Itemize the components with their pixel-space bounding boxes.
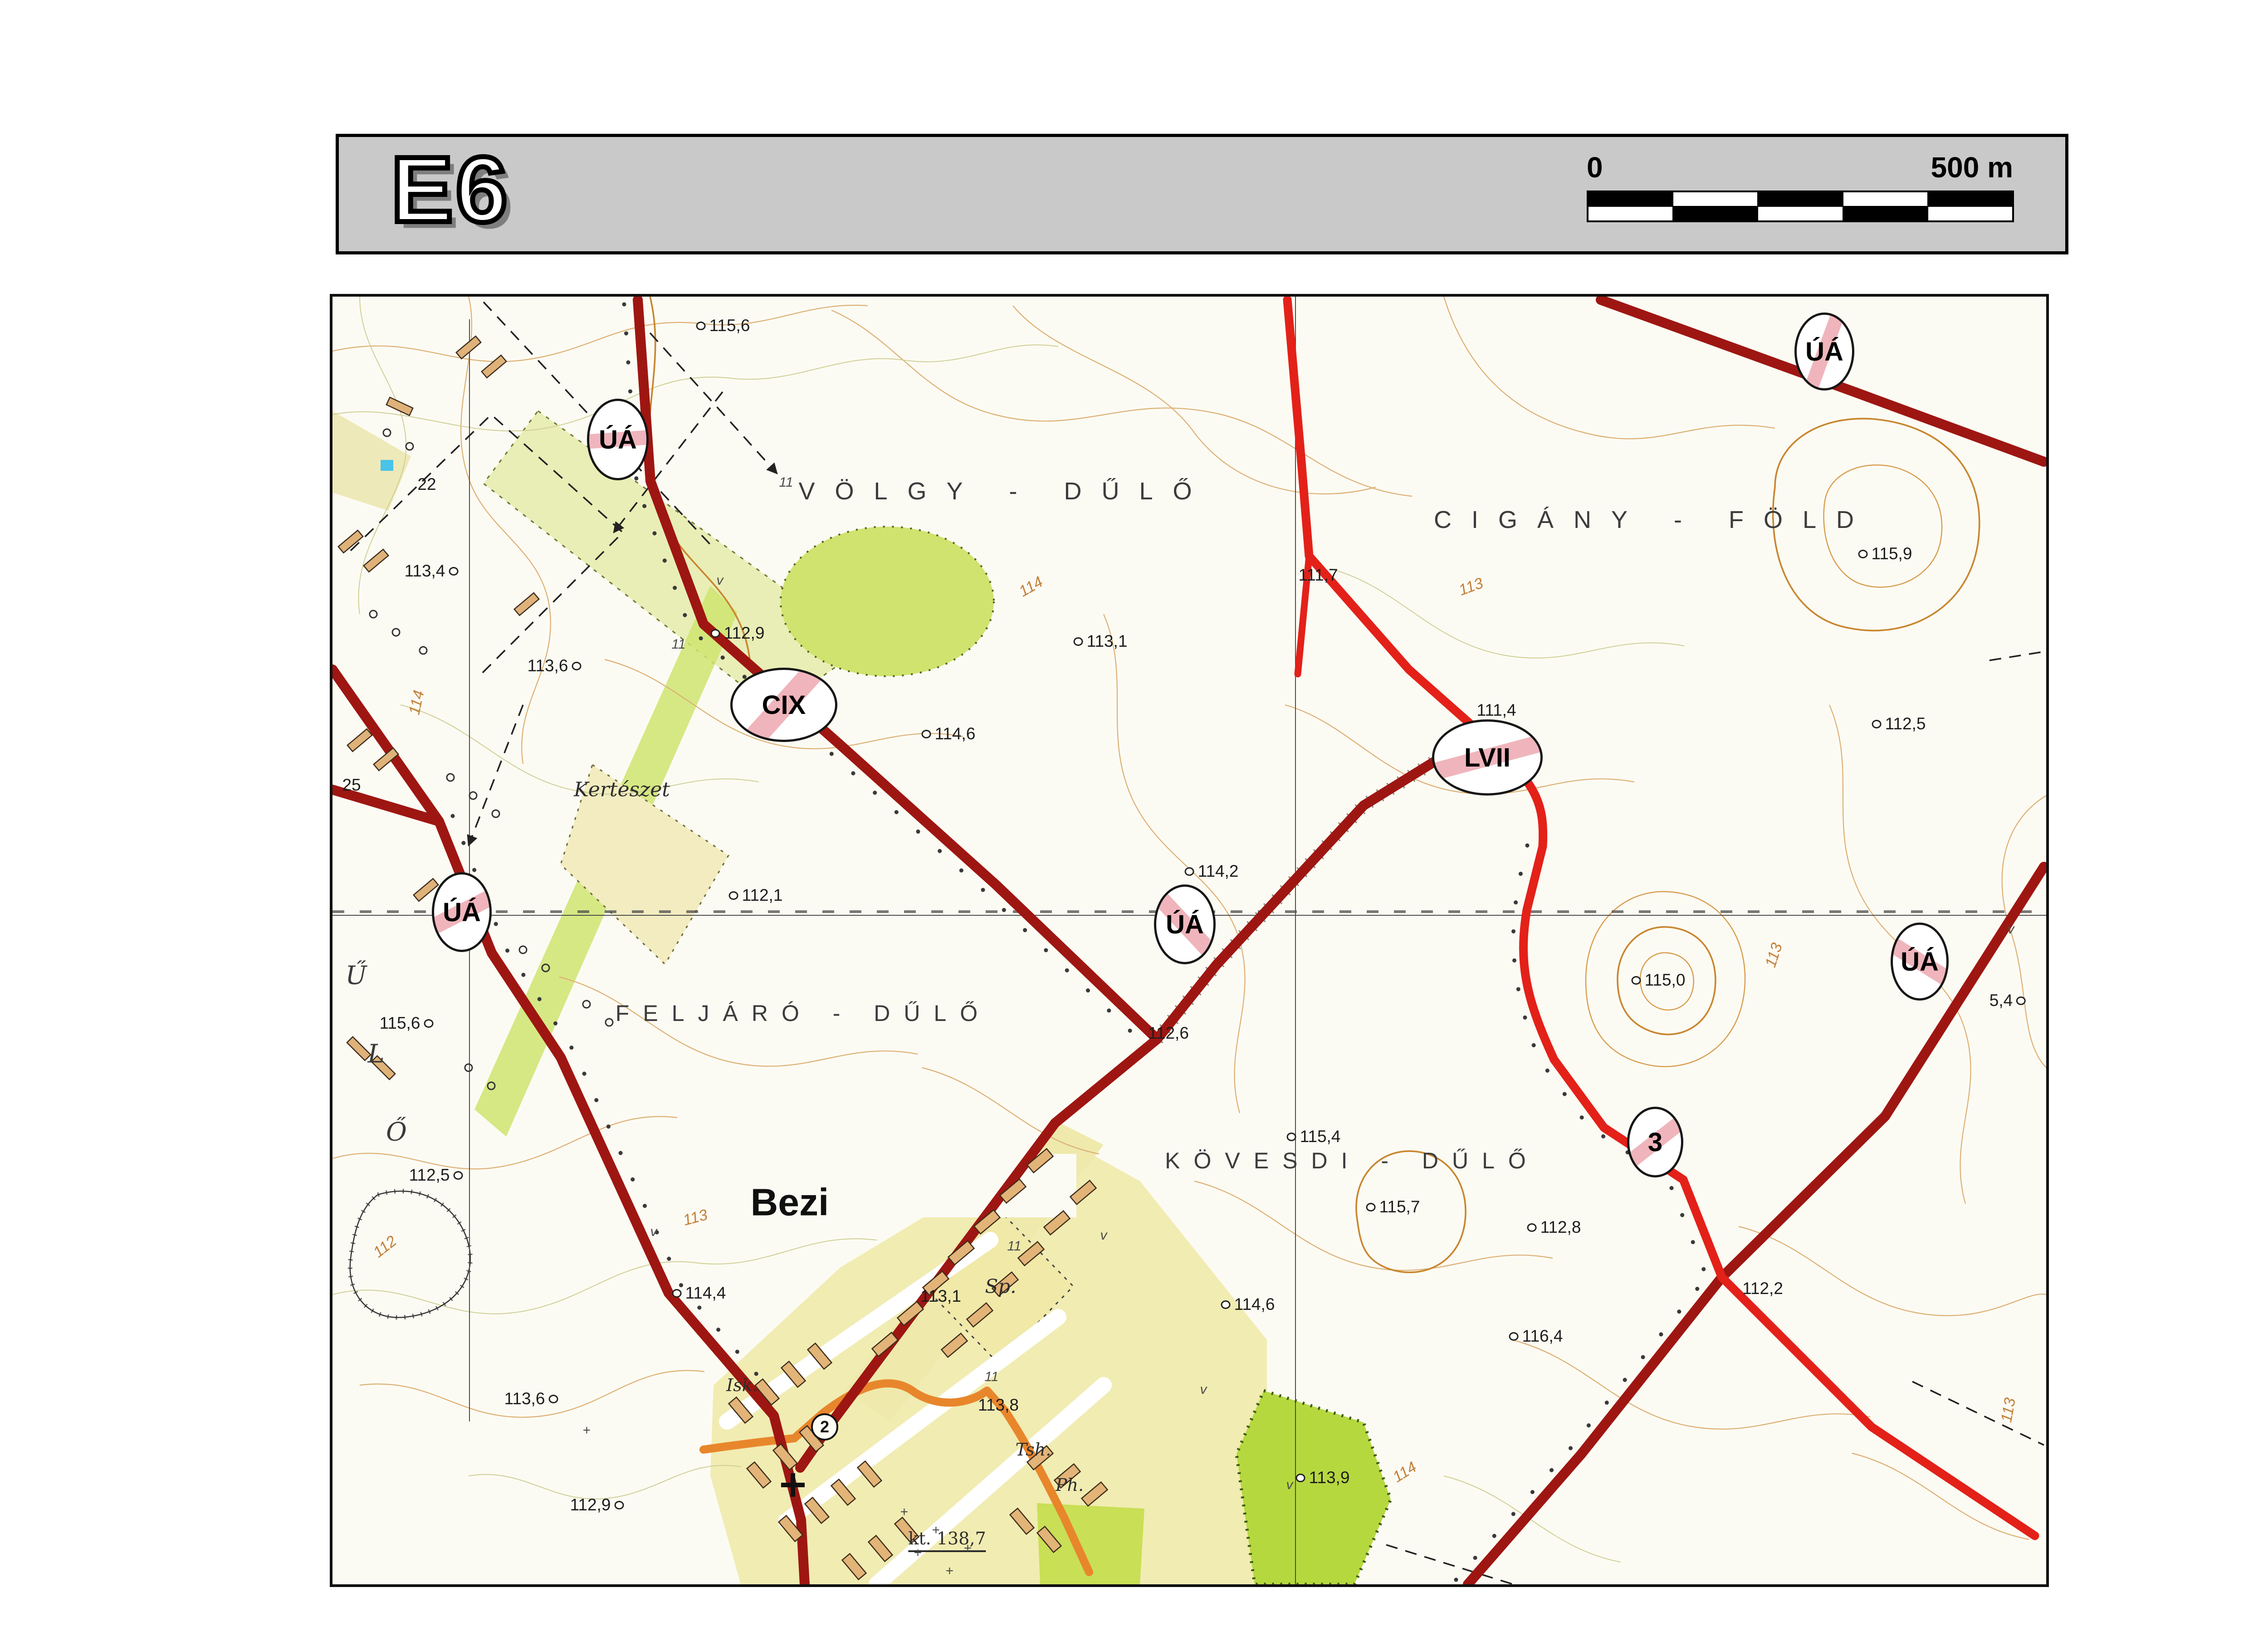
elevation-value: 114,6 — [1234, 1295, 1275, 1314]
elevation-point-icon — [711, 629, 720, 638]
road-badge: ÚÁ — [432, 872, 492, 952]
road-badge: ÚÁ — [1794, 313, 1854, 391]
terrain-symbol: v — [650, 1224, 657, 1240]
edge-region-letter: Ű — [345, 961, 367, 991]
elevation-label: 114,6 — [1221, 1295, 1275, 1314]
scale-segment — [1843, 192, 1928, 221]
elevation-label: 113,4 — [405, 562, 459, 581]
elevation-value: 25 — [342, 776, 361, 795]
region-name-label: FELJÁRÓ - DŰLŐ — [616, 1000, 991, 1026]
terrain-symbol: 11 — [779, 475, 793, 490]
elevation-value: 112,9 — [570, 1495, 611, 1514]
road-badge: LVII — [1432, 719, 1543, 796]
elevation-label: 113,6 — [528, 656, 582, 675]
elevation-label: 112,9 — [570, 1495, 624, 1514]
elevation-value: 112,6 — [1148, 1024, 1189, 1043]
elevation-value: 113,1 — [1087, 632, 1128, 651]
elevation-value: 111,4 — [1476, 701, 1516, 720]
place-label: Sp. — [985, 1275, 1016, 1298]
sheet-id-label: E6 — [391, 137, 510, 244]
elevation-point-icon — [424, 1019, 433, 1028]
region-name-label: VÖLGY - DŰLŐ — [798, 477, 1212, 505]
elevation-label: 112,6 — [1148, 1024, 1189, 1043]
elevation-point-icon — [672, 1289, 682, 1298]
contour-elevation-label: 113 — [681, 1206, 709, 1230]
elevation-point-icon — [1632, 976, 1641, 985]
elevation-point-icon — [1509, 1332, 1519, 1341]
terrain-symbol: v — [717, 573, 723, 588]
road-badge: CIX — [730, 668, 837, 742]
terrain-symbol: + — [963, 1541, 972, 1556]
elevation-value: 113,6 — [528, 656, 568, 675]
terrain-symbol: + — [932, 1523, 940, 1538]
contour-elevation-label: 114 — [1390, 1458, 1420, 1486]
elevation-point-icon — [1296, 1474, 1305, 1482]
elevation-label: 112,9 — [711, 624, 765, 643]
terrain-symbol: + — [900, 1504, 908, 1520]
elevation-label: 115,9 — [1858, 544, 1912, 563]
elevation-value: 113,9 — [1309, 1468, 1350, 1487]
contour-elevation-label: 114 — [1016, 573, 1046, 601]
edge-region-letter: L — [367, 1040, 384, 1069]
map-sheet-header: E6 0 500 m — [336, 134, 2068, 254]
scale-segment — [1758, 192, 1843, 221]
elevation-value: 113,4 — [405, 562, 445, 581]
region-name-label: CIGÁNY - FÖLD — [1434, 506, 1874, 534]
scale-bar: 0 500 m — [1587, 151, 2013, 222]
elevation-label: 112,8 — [1527, 1218, 1581, 1237]
map-labels-layer: VÖLGY - DŰLŐCIGÁNY - FÖLDFELJÁRÓ - DŰLŐK… — [332, 297, 2046, 1584]
terrain-symbol: 11 — [984, 1369, 998, 1385]
road-badge: 3 — [1627, 1107, 1683, 1177]
elevation-label: 114,2 — [1185, 862, 1239, 881]
elevation-point-icon — [614, 1501, 624, 1509]
elevation-value: 112,5 — [409, 1166, 450, 1185]
elevation-value: 112,9 — [724, 624, 765, 643]
terrain-symbol: 11 — [671, 637, 685, 652]
scale-segment — [1673, 192, 1758, 221]
elevation-point-icon — [2016, 996, 2026, 1005]
elevation-value: 115,6 — [380, 1014, 420, 1033]
scale-end-label: 500 m — [1931, 151, 2013, 184]
circled-number-marker: 2 — [811, 1413, 838, 1441]
elevation-value: 115,4 — [1300, 1127, 1341, 1146]
terrain-symbol: 11 — [1007, 1239, 1021, 1254]
place-label: Kertészet — [574, 778, 670, 801]
elevation-point-icon — [1185, 867, 1194, 876]
elevation-point-icon — [729, 891, 738, 900]
elevation-point-icon — [572, 662, 581, 670]
place-label: Tsh. — [1016, 1440, 1051, 1460]
elevation-point-icon — [1366, 1203, 1376, 1211]
road-badge: ÚÁ — [1891, 923, 1949, 1001]
elevation-point-icon — [1872, 720, 1882, 728]
terrain-symbol: + — [945, 1563, 953, 1579]
terrain-symbol: + — [582, 1423, 591, 1438]
region-name-label: KÖVESDI - DŰLŐ — [1165, 1148, 1540, 1174]
elevation-label: 113,9 — [1296, 1468, 1350, 1487]
elevation-label: 115,7 — [1366, 1197, 1420, 1216]
contour-elevation-label: 113 — [1998, 1397, 2019, 1424]
elevation-value: 113,1 — [920, 1287, 961, 1306]
elevation-value: 115,7 — [1379, 1197, 1420, 1216]
place-label: Ph. — [1056, 1475, 1084, 1495]
elevation-label: 112,5 — [409, 1166, 463, 1185]
elevation-value: 112,5 — [1885, 714, 1926, 733]
elevation-value: 116,4 — [1522, 1327, 1563, 1346]
elevation-value: 112,1 — [742, 886, 783, 905]
scale-start-label: 0 — [1587, 151, 1603, 184]
elevation-point-icon — [922, 730, 931, 738]
map-area: VÖLGY - DŰLŐCIGÁNY - FÖLDFELJÁRÓ - DŰLŐK… — [330, 294, 2049, 1587]
elevation-value: 115,9 — [1872, 544, 1912, 563]
elevation-value: 115,6 — [709, 316, 750, 335]
elevation-label: 112,5 — [1872, 714, 1926, 733]
elevation-label: 25 — [342, 776, 361, 795]
terrain-symbol: v — [1200, 1382, 1207, 1397]
elevation-label: 112,2 — [1742, 1279, 1783, 1298]
elevation-point-icon — [453, 1171, 463, 1180]
elevation-value: 115,0 — [1645, 971, 1686, 990]
elevation-value: 114,6 — [935, 724, 976, 743]
elevation-value: 22 — [417, 475, 436, 494]
elevation-label: 115,6 — [696, 316, 750, 335]
elevation-label: 115,0 — [1632, 971, 1686, 990]
elevation-point-icon — [1527, 1223, 1537, 1232]
elevation-label: 113,1 — [1074, 632, 1128, 651]
place-label: Bezi — [751, 1181, 829, 1225]
elevation-value: 114,4 — [685, 1284, 726, 1303]
contour-elevation-label: 114 — [406, 689, 428, 716]
scale-segment — [1928, 192, 2013, 221]
elevation-label: 113,6 — [504, 1389, 558, 1408]
elevation-label: 22 — [417, 475, 436, 494]
elevation-label: 112,1 — [729, 886, 783, 905]
terrain-symbol: v — [1286, 1477, 1293, 1493]
contour-elevation-label: 113 — [1457, 574, 1486, 599]
elevation-value: 112,2 — [1742, 1279, 1783, 1298]
church-cross-icon — [781, 1473, 805, 1497]
elevation-value: 5,4 — [1989, 991, 2013, 1010]
contour-elevation-label: 112 — [370, 1232, 401, 1261]
contour-elevation-label: 113 — [1762, 941, 1786, 970]
elevation-point-icon — [696, 322, 706, 330]
terrain-symbol: v — [1100, 1228, 1107, 1243]
elevation-label: 115,6 — [380, 1014, 434, 1033]
elevation-value: 113,8 — [978, 1396, 1019, 1415]
edge-region-letter: Ő — [386, 1118, 407, 1147]
elevation-label: 114,6 — [922, 724, 976, 743]
elevation-value: 112,8 — [1540, 1218, 1581, 1237]
elevation-label: 111,7 — [1298, 566, 1338, 585]
elevation-label: 115,4 — [1287, 1127, 1341, 1146]
elevation-label: 5,4 — [1989, 991, 2026, 1010]
place-label: Isk. — [726, 1375, 758, 1395]
elevation-point-icon — [449, 567, 458, 576]
elevation-value: 114,2 — [1198, 862, 1239, 881]
elevation-label: 111,4 — [1476, 701, 1516, 720]
road-badge: ÚÁ — [1154, 884, 1216, 964]
elevation-point-icon — [548, 1395, 558, 1403]
elevation-value: 113,6 — [504, 1389, 545, 1408]
terrain-symbol: v — [2008, 922, 2014, 937]
scale-segment — [1588, 192, 1673, 221]
elevation-label: 113,8 — [978, 1396, 1019, 1415]
terrain-symbol: + — [914, 1545, 922, 1561]
road-badge: ÚÁ — [587, 399, 649, 480]
elevation-point-icon — [1221, 1300, 1231, 1309]
elevation-point-icon — [1287, 1133, 1296, 1141]
elevation-value: 111,7 — [1298, 566, 1338, 585]
elevation-point-icon — [1074, 637, 1083, 646]
scale-bar-checker — [1587, 190, 2014, 222]
elevation-point-icon — [1858, 550, 1868, 558]
elevation-label: 113,1 — [920, 1287, 961, 1306]
elevation-label: 114,4 — [672, 1284, 726, 1303]
elevation-label: 116,4 — [1509, 1327, 1563, 1346]
